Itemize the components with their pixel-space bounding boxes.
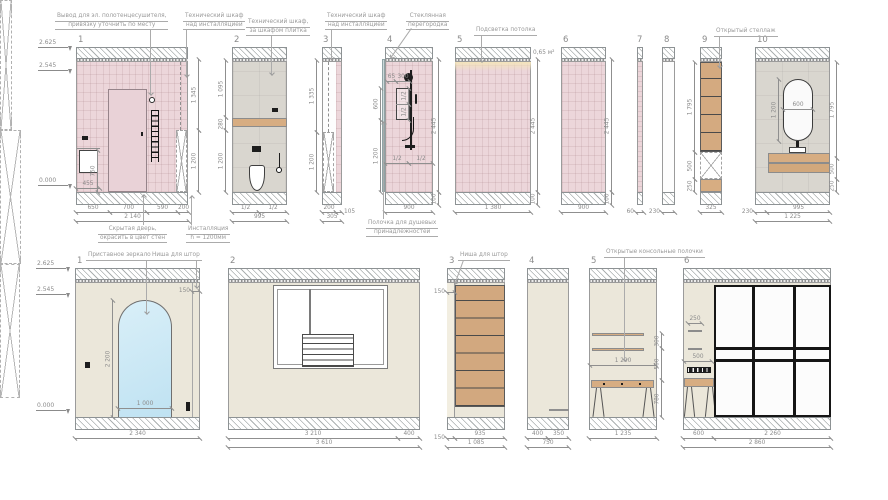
dim-label: 1/2: [392, 157, 401, 163]
hygienic-shower-hose: [279, 153, 280, 167]
dim-label: 935: [474, 432, 485, 438]
light-switch: [85, 362, 90, 368]
dim-total: 2 140: [76, 221, 189, 222]
dim: 2 260: [714, 438, 831, 439]
drawer-knob: [621, 383, 623, 385]
niche-edge-line: [192, 283, 193, 417]
dim-label: 1 085: [468, 441, 485, 447]
screen-mullion: [752, 287, 755, 415]
floor-hatch: [755, 192, 830, 205]
dim-label: 1 345: [193, 86, 199, 103]
dim: 250: [694, 179, 695, 192]
glass-screen: [714, 285, 831, 417]
panel-number: 4: [529, 256, 534, 266]
wall-outlet: [186, 402, 190, 411]
dim: 2 200: [112, 300, 113, 417]
dim-label: 305: [326, 215, 337, 221]
dim: 600: [380, 88, 381, 120]
dim-total: 1 380: [455, 212, 531, 213]
dim-label: 3 210: [305, 432, 322, 438]
dim-label: 1 795: [689, 99, 695, 116]
dim-label: 500: [831, 163, 837, 174]
level-mark: 2.625: [36, 260, 66, 269]
ceiling-hatch: [683, 268, 831, 280]
dim-label: 325: [705, 206, 716, 212]
dim-label: 1/2: [416, 157, 425, 163]
ceiling-hatch: [76, 47, 188, 59]
floor-hatch: [637, 192, 643, 205]
note-line: Ниша для штор: [458, 252, 510, 261]
installation-axis: [328, 62, 329, 132]
dim: 500: [661, 348, 662, 380]
dim: 1 335: [316, 60, 317, 132]
dim-label: 400: [403, 432, 414, 438]
floor-hatch: [447, 417, 505, 430]
note-line: Ниша для штор: [150, 252, 202, 261]
dim: 2 445: [537, 59, 538, 192]
dim: 1 345: [198, 59, 199, 130]
note-console-shelves: Открытые консольные полочки: [604, 249, 705, 258]
dim-label: 150: [434, 436, 445, 442]
dim: 1 000: [118, 408, 172, 409]
open-shelving: [700, 62, 722, 152]
countertop: [768, 153, 830, 163]
dim-label: 300: [397, 75, 408, 81]
note-line: за шкафом плитка: [246, 28, 310, 37]
dim: 590: [147, 212, 178, 213]
dim-label: 2 340: [129, 432, 146, 438]
dim-label: 995: [793, 206, 804, 212]
ceiling-hatch: [662, 47, 675, 59]
ceiling-hatch: [637, 47, 643, 59]
ceiling-hatch: [455, 47, 531, 59]
dim: 1/2: [385, 163, 409, 164]
dim: 500: [836, 158, 837, 179]
dim: 1 095: [225, 60, 226, 117]
dim-label: 2 140: [124, 215, 141, 221]
dim-label: 1 200: [311, 154, 317, 171]
dim: 2 445: [611, 59, 612, 192]
level-label: 2.625: [37, 260, 54, 267]
dim-label: 455: [82, 182, 93, 188]
dim-label: 1 095: [220, 80, 226, 97]
floor-hatch: [455, 192, 531, 205]
floor-hatch: [228, 417, 420, 430]
dim-label: 1 225: [784, 215, 801, 221]
level-mark: 2.625: [38, 39, 68, 48]
dim-label: 1 200: [193, 153, 199, 170]
dim-total: 230: [662, 212, 675, 213]
wood-base: [700, 179, 722, 192]
elevation-6: [561, 47, 606, 205]
dim-total: 2 340: [75, 438, 200, 439]
console-shelf: [592, 348, 644, 351]
screen-rail: [716, 359, 829, 362]
elevation-7: [637, 47, 643, 205]
note-line: перегородка: [406, 22, 449, 31]
note-ceiling-light: Подсветка потолка: [474, 27, 537, 36]
dim-total: 900: [385, 212, 433, 213]
elevation-b4: [527, 268, 569, 430]
dim: 300: [661, 333, 662, 348]
dim-label: 600: [693, 432, 704, 438]
note-glass-partition: Стекляннаяперегородка: [406, 13, 449, 30]
note-line: Открытый стеллаж: [714, 28, 778, 37]
floor-hatch: [700, 192, 722, 205]
dim-label: 1/2: [241, 206, 250, 212]
dim-total: 3 610: [228, 447, 420, 448]
wall-outlet: [272, 108, 278, 112]
dim-label: 105: [344, 210, 355, 216]
dim-label: 2 445: [532, 117, 538, 134]
dim: 1 795: [836, 62, 837, 158]
dim-label: 250: [689, 317, 700, 323]
floor-hatch: [683, 417, 831, 430]
dim-label: 400: [532, 432, 543, 438]
note-curtain-niche: Ниша для штор: [458, 252, 510, 261]
note-open-shelving: Открытый стеллаж: [714, 28, 778, 37]
panel-number: 3: [449, 256, 454, 266]
tech-shutter: [323, 132, 334, 192]
wall-tile: [561, 62, 606, 192]
level-mark: 0.000: [36, 402, 66, 411]
dim-label: 2 445: [606, 117, 612, 134]
level-mark: 2.545: [36, 286, 66, 295]
leader: [481, 35, 482, 62]
dim: 600: [783, 109, 813, 110]
dim-label: 300: [656, 335, 662, 346]
floor-hatch: [662, 192, 675, 205]
note-line: Подсветка потолка: [474, 27, 537, 36]
dim-label: 600: [375, 98, 381, 109]
ceiling-hatch: [561, 47, 606, 59]
dim-label: 750: [542, 441, 553, 447]
dim-total: 1 225: [755, 221, 830, 222]
elevation-8: [662, 47, 675, 205]
leader: [331, 29, 332, 60]
dim-label: 1 335: [311, 88, 317, 105]
dim-label: 200: [178, 206, 189, 212]
panel-number: 8: [664, 35, 669, 45]
dim: 150: [192, 291, 200, 292]
dim: 1/2: [408, 88, 409, 104]
dim: 1 795: [694, 62, 695, 152]
dim: 1 200: [590, 365, 656, 366]
elevation-drawing-sheet: 750 1 2 3 4 5 6 7 8 9 10 2.625 2.545 0.0…: [0, 0, 888, 500]
leader: [271, 35, 272, 75]
drawer-knob: [639, 383, 641, 385]
note-shower-shelf: Полочка для душевыхпринадлежностей: [366, 220, 438, 237]
dim: 250: [836, 179, 837, 192]
note-curtain-niche: Ниша для штор: [150, 252, 202, 261]
dim-label: 150: [179, 289, 190, 295]
panel-number: 3: [323, 35, 328, 45]
wood-shelf: [232, 118, 287, 127]
dim: 1 200: [778, 79, 779, 141]
dim-label: 600: [792, 103, 803, 109]
note-line: над инсталляцией: [325, 22, 387, 31]
panel-number: 9: [702, 35, 707, 45]
panel-number: 1: [77, 256, 82, 266]
dim-label: 500: [656, 358, 662, 369]
floor-hatch: [322, 192, 342, 205]
note-line: Скрытая дверь,: [98, 226, 167, 235]
level-label: 0.000: [37, 402, 54, 409]
panel-number: 1: [78, 35, 83, 45]
note-line: Вывод для эл. полотенцесушителя,: [55, 13, 168, 22]
panel-number: 5: [457, 35, 462, 45]
dim-label: 1 200: [220, 153, 226, 170]
drawer-knob: [603, 383, 605, 385]
level-mark: 0.000: [38, 177, 68, 186]
hygienic-shower-head: [276, 167, 282, 173]
note-line: принадлежностей: [366, 229, 438, 238]
curtain-niche-strip: [447, 283, 455, 417]
floor-hatch: [561, 192, 606, 205]
leader: [719, 36, 720, 68]
console-shelf: [688, 330, 702, 332]
dim-label: 3 610: [316, 441, 333, 447]
panel-number: 5: [591, 256, 596, 266]
dim: 500: [694, 152, 695, 179]
floor-hatch: [76, 192, 188, 205]
floor-hatch: [385, 192, 433, 205]
dim-label: 700: [123, 206, 134, 212]
dim: 250: [688, 323, 702, 324]
note-line: Технический шкаф: [325, 13, 387, 22]
curtain: [0, 0, 12, 130]
wall-panel: [527, 283, 569, 417]
ceiling-hatch: [228, 268, 420, 280]
dim-label: 1 200: [375, 148, 381, 165]
level-label: 0.000: [39, 177, 56, 184]
leader: [624, 257, 625, 361]
floor-hatch: [232, 192, 287, 205]
console-shelf: [688, 348, 702, 350]
dim-label: 100: [532, 193, 538, 204]
note-installation: Инсталляцияh = 1200мм: [186, 226, 230, 243]
dim-label: 1 380: [485, 206, 502, 212]
wall-strip: [662, 62, 675, 192]
note-line: Инсталляция: [186, 226, 230, 235]
curtain: [0, 130, 21, 264]
dim-label: 500: [692, 355, 703, 361]
leader: [143, 195, 144, 225]
dim: 1 200: [198, 130, 199, 192]
dim-label: 250: [689, 180, 695, 191]
screen-rail: [716, 347, 829, 350]
dim-label: 100: [433, 193, 439, 204]
light-switch: [82, 136, 88, 140]
dim-label: 500: [689, 160, 695, 171]
leader: [383, 122, 384, 219]
towel-outlet-symbol: [149, 97, 155, 103]
dim: 500: [684, 361, 712, 362]
ceiling-hatch: [589, 268, 657, 280]
dim: 780: [661, 380, 662, 417]
panel-number: 4: [387, 35, 392, 45]
wall-tile: [455, 62, 531, 192]
note-line: Технический шкаф: [183, 13, 245, 22]
dim-total: 750: [527, 447, 569, 448]
dim: 1 200: [380, 120, 381, 192]
dim-label: 60: [627, 210, 634, 216]
note-leaning-mirror: Приставное зеркало: [86, 252, 153, 261]
towel-rail: [151, 110, 159, 162]
ceiling-hatch: [75, 268, 200, 280]
ceiling-hatch: [232, 47, 287, 59]
dim-label: 1 000: [137, 402, 154, 408]
shelf-unit: [455, 285, 505, 407]
dim-total: 325: [700, 212, 722, 213]
flush-plate: [252, 146, 261, 152]
note-line: h = 1200мм: [186, 235, 230, 244]
note-towel-outlet: Вывод для эл. полотенцесушителя,привязку…: [55, 13, 168, 30]
note-line: окрасить в цвет стен: [98, 235, 167, 244]
panel-number: 6: [563, 35, 568, 45]
door-handle: [141, 132, 143, 136]
dim: 600: [683, 438, 714, 439]
dim-total: 1 085: [447, 447, 505, 448]
ceiling-hatch: [527, 268, 569, 280]
level-mark: 2.545: [38, 62, 68, 71]
dim-total: 995: [232, 221, 287, 222]
dim-label: 2 445: [433, 117, 439, 134]
floor-hatch: [75, 417, 200, 430]
dim: 1 200: [225, 130, 226, 192]
dim-label: 1 235: [615, 432, 632, 438]
tech-shutter: [700, 152, 722, 179]
note-line: Открытые консольные полочки: [604, 249, 705, 258]
note-hidden-door: Скрытая дверь,окрасить в цвет стен: [98, 226, 167, 243]
dim-label: 1/2: [268, 206, 277, 212]
dim: 300: [396, 81, 410, 82]
panel-number: 2: [230, 256, 235, 266]
leader: [186, 29, 187, 77]
level-label: 2.545: [39, 62, 56, 69]
dim: 100: [537, 192, 538, 205]
dim-label: 150: [434, 290, 445, 296]
dim-label: 650: [87, 206, 98, 212]
mirror-oval: [783, 79, 813, 141]
curtain: [0, 264, 20, 398]
installation-niche: [176, 130, 187, 192]
dim-label: 2 200: [107, 350, 113, 367]
ceiling-hatch: [755, 47, 830, 59]
panel-number: 7: [637, 35, 642, 45]
dim: 150: [447, 292, 455, 293]
console-table: [684, 378, 714, 387]
hidden-door: [108, 89, 147, 192]
dim-label: 1 795: [831, 102, 837, 119]
note-line: Технический шкаф,: [246, 19, 310, 28]
note-line: Приставное зеркало: [86, 252, 153, 261]
dim-total: 900: [561, 212, 606, 213]
hand-shower: [415, 94, 417, 104]
floor-hatch: [527, 417, 569, 430]
dim-label: 1/2: [403, 107, 409, 116]
level-label: 2.625: [39, 39, 56, 46]
dim: 100: [611, 192, 612, 205]
dim-label: 1/2: [403, 91, 409, 100]
dim: 400: [398, 438, 420, 439]
shower-mixer: [405, 145, 415, 148]
dim: 650: [76, 212, 110, 213]
floor-hatch: [589, 417, 657, 430]
note-tech-cabinet: Технический шкаф,за шкафом плитка: [246, 19, 310, 36]
led-glow: [455, 62, 531, 71]
console-table: [591, 380, 654, 388]
dim-label: 2 860: [749, 441, 766, 447]
socket-strip: [687, 367, 711, 373]
panel-number: 2: [234, 35, 239, 45]
radiator: [302, 334, 354, 367]
dim: 200: [178, 212, 189, 213]
dim-label: 230: [742, 210, 753, 216]
leader: [146, 260, 147, 314]
dim-label: 900: [578, 206, 589, 212]
dim-total: 60: [636, 212, 644, 213]
leader: [150, 29, 151, 95]
screen-mullion: [793, 287, 796, 415]
leader: [191, 196, 192, 225]
installation-axis: [180, 62, 181, 130]
dim-total: 1 235: [589, 438, 657, 439]
dim: 100: [438, 192, 439, 205]
dim-label: 350: [553, 432, 564, 438]
vanity-drawer: [768, 163, 830, 173]
dim-label: 230: [649, 210, 660, 216]
dim-total: 305: [322, 221, 342, 222]
dim: 2 445: [438, 59, 439, 192]
dim: 1/2: [408, 104, 409, 120]
dim-label: 750: [92, 165, 98, 176]
dim: 1/2: [409, 163, 433, 164]
level-label: 2.545: [37, 286, 54, 293]
dim: 1 200: [316, 132, 317, 192]
note-line: Стеклянная: [406, 13, 449, 22]
note-tech-cabinet: Технический шкафнад инсталляцией: [183, 13, 245, 30]
console-shelf: [592, 333, 644, 336]
note-line: над инсталляцией: [183, 22, 245, 31]
dim-label: 100: [606, 193, 612, 204]
dim-label: 250: [831, 180, 837, 191]
note-tech-cabinet: Технический шкафнад инсталляцией: [325, 13, 387, 30]
area-label: 0,65 м²: [533, 51, 554, 57]
dim: 455: [76, 188, 100, 189]
dim-label: 590: [157, 206, 168, 212]
arched-mirror: [118, 300, 172, 417]
skirting-line: [549, 409, 569, 411]
dim: 3 210: [228, 438, 398, 439]
dim-total: 2 860: [683, 447, 831, 448]
wall-strip: [637, 62, 643, 192]
dim-label: 995: [254, 215, 265, 221]
dim-label: 1 200: [773, 102, 779, 119]
dim-label: 2 260: [764, 432, 781, 438]
leader: [196, 260, 197, 288]
tile-return: [336, 62, 342, 192]
note-line: привязку уточнить по месту: [55, 22, 168, 31]
dim-label: 900: [403, 206, 414, 212]
note-line: Полочка для душевых: [366, 220, 438, 229]
dim-label: 780: [656, 393, 662, 404]
